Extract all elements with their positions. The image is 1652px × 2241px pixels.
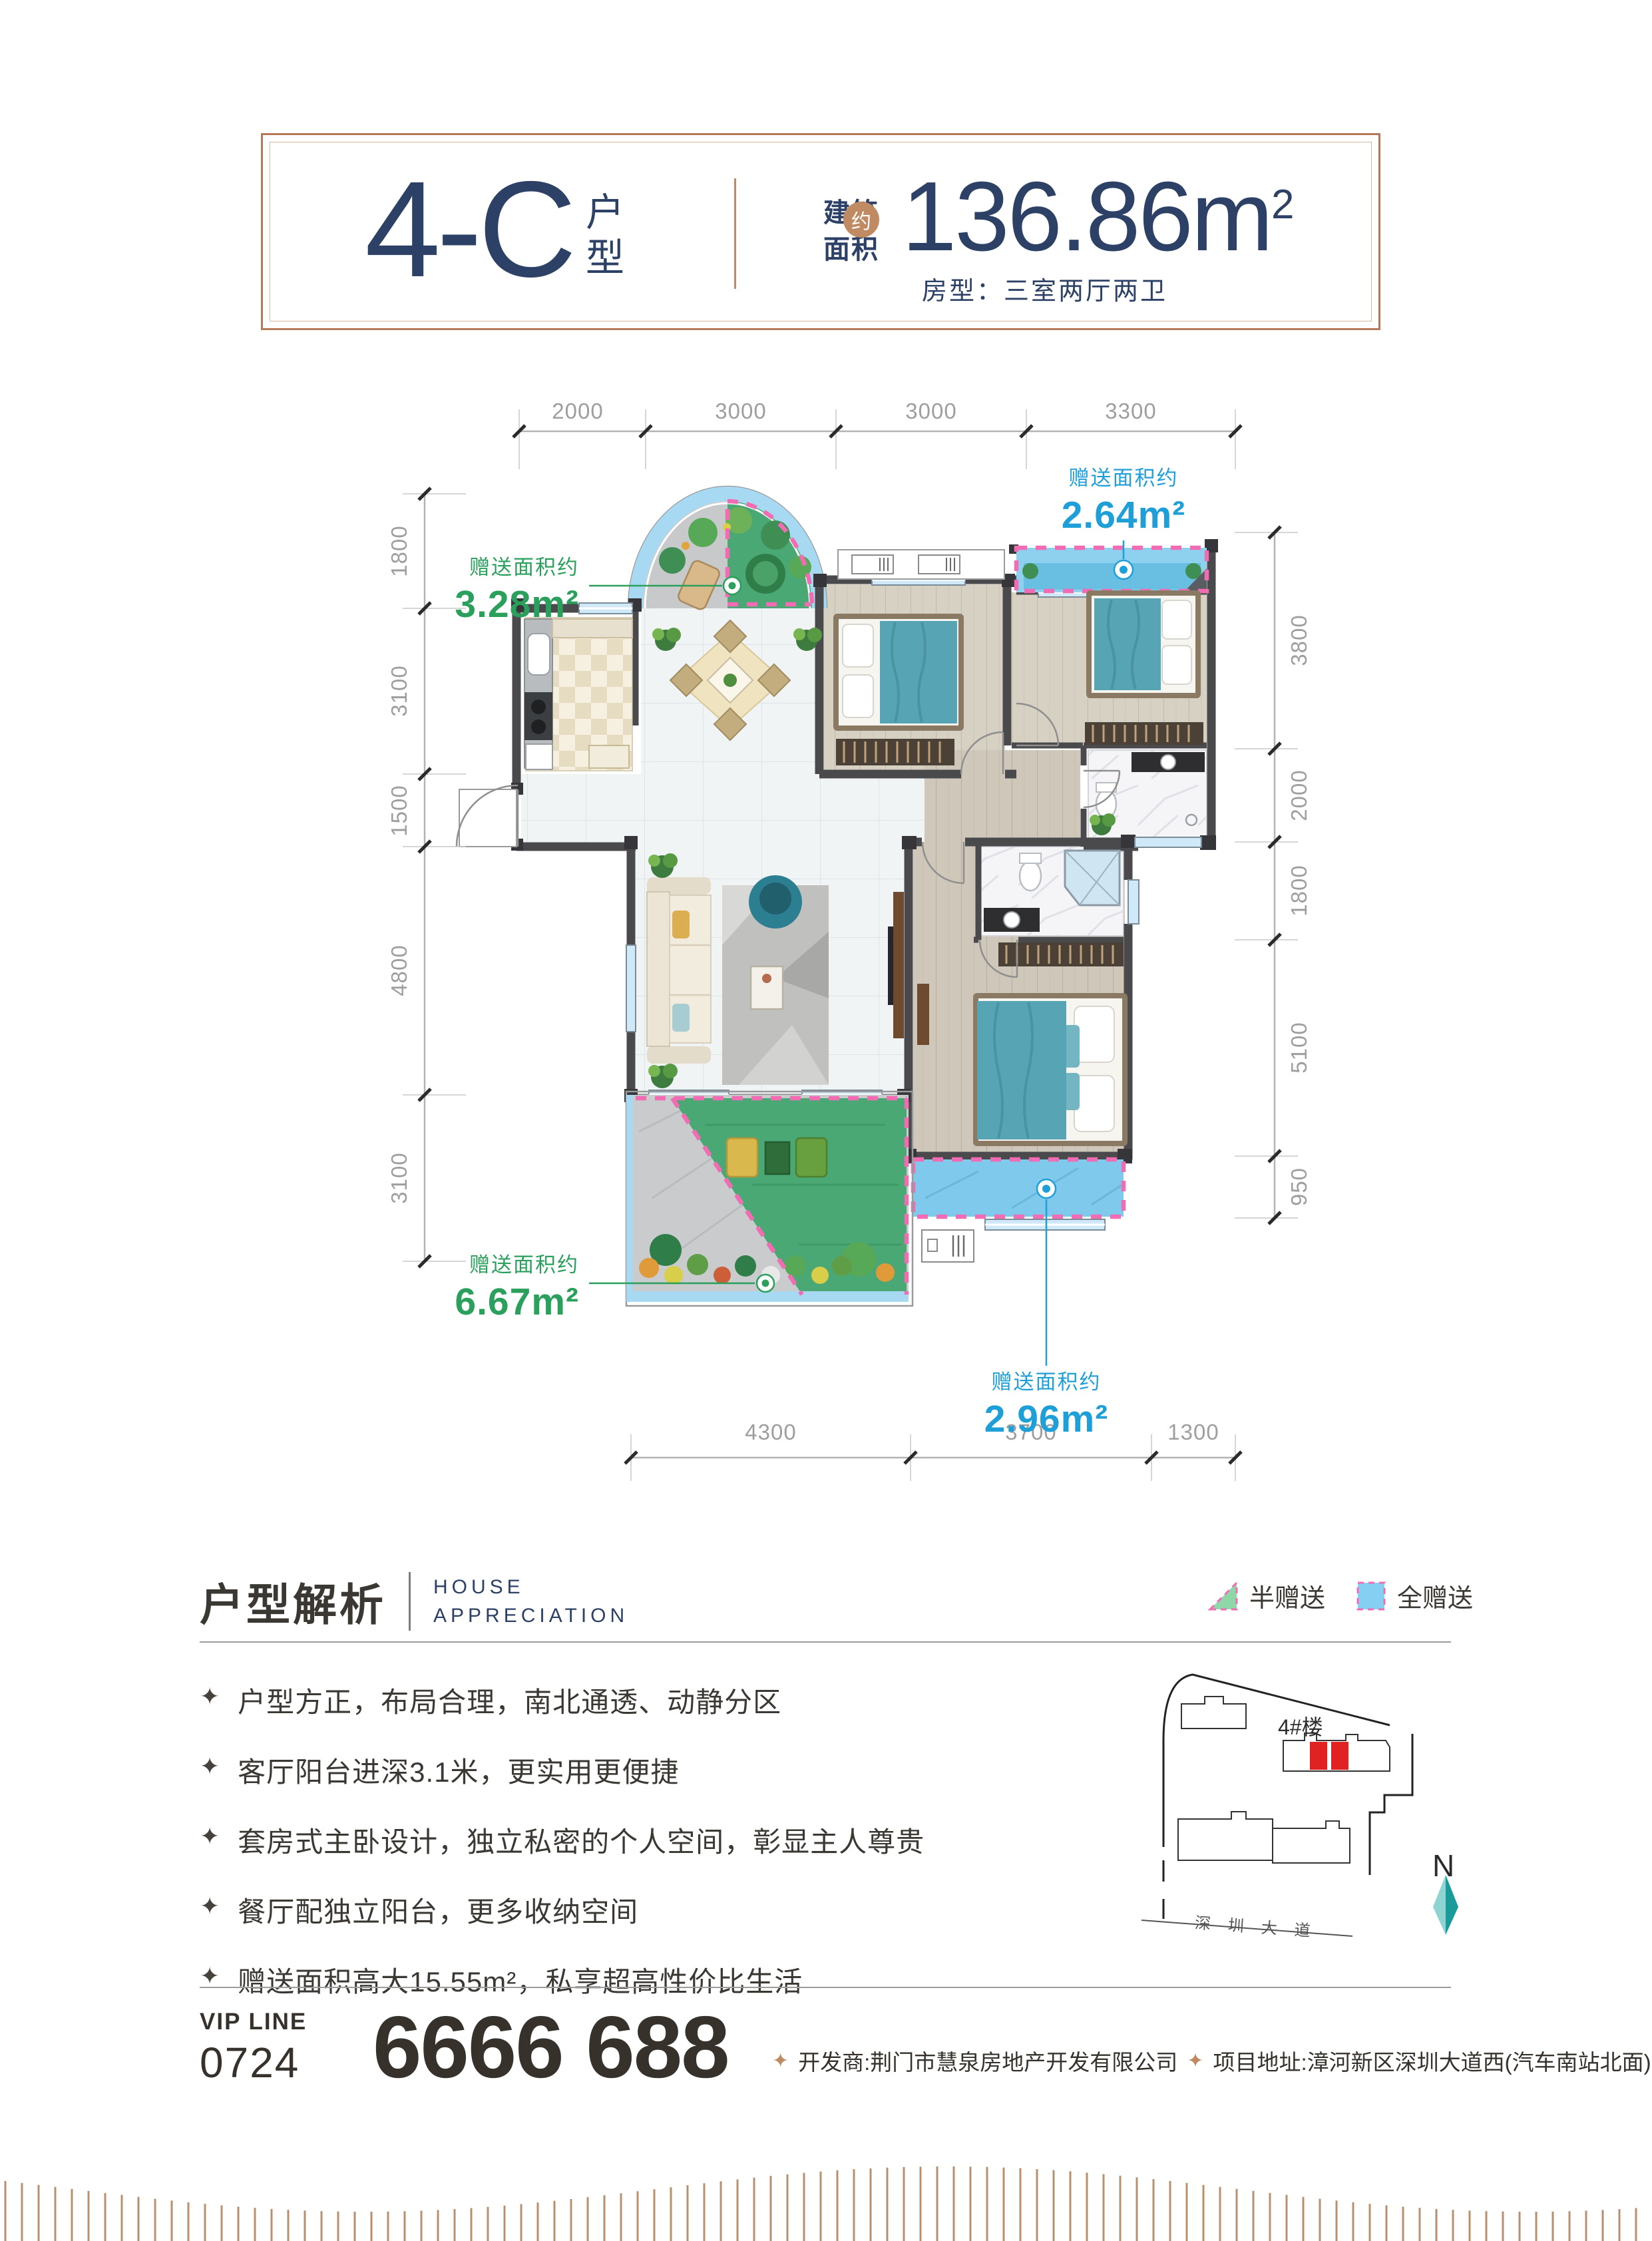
analysis-subtitle: HOUSE APPRECIATION <box>433 1573 628 1631</box>
gift-balcony-top <box>1016 548 1207 592</box>
dim-bottom-1: 4300 <box>745 1420 796 1445</box>
dim-top-4: 3300 <box>1105 399 1156 424</box>
dim-left-2: 3100 <box>387 665 412 716</box>
analysis-subtitle-line1: HOUSE <box>433 1573 628 1602</box>
bullet-text: 餐厅配独立阳台，更多收纳空间 <box>238 1890 638 1930</box>
gift-label-2-64: 赠送面积约 2.64m² <box>1024 466 1223 539</box>
north-label: N <box>1432 1848 1454 1884</box>
bullet-text: 赠送面积高大15.55m²，私享超高性价比生活 <box>238 1959 803 2000</box>
unit-type-label: 户型 <box>586 190 628 282</box>
approx-badge: 约 <box>843 202 879 238</box>
dim-right-1: 3800 <box>1287 614 1312 666</box>
footer-rule <box>200 1987 1451 1988</box>
diamond-bullet-icon: ✦ <box>200 1680 220 1713</box>
dim-right-4: 5100 <box>1287 1022 1312 1073</box>
dim-left-5: 3100 <box>387 1152 412 1203</box>
gift-legend: 半赠送 全赠送 <box>1208 1577 1473 1614</box>
diamond-bullet-icon: ✦ <box>200 1750 220 1783</box>
site-map <box>1105 1641 1498 1937</box>
analysis-subtitle-line2: APPRECIATION <box>433 1601 628 1631</box>
garden-balcony <box>626 1092 913 1306</box>
bullet-text: 户型方正，布局合理，南北通透、动静分区 <box>238 1680 781 1721</box>
gift-label-text: 赠送面积约 <box>1024 466 1223 492</box>
diamond-bullet-icon: ✦ <box>200 1820 220 1853</box>
vip-phone-number: 6666 688 <box>373 1997 729 2097</box>
vip-area-code: 0724 <box>200 2038 307 2087</box>
full-gift-square-icon <box>1356 1581 1386 1611</box>
diamond-icon: ✦ <box>772 2049 789 2073</box>
list-item: ✦赠送面积高大15.55m²，私享超高性价比生活 <box>200 1959 1171 2000</box>
dim-top-3: 3000 <box>905 399 956 424</box>
list-item: ✦套房式主卧设计，独立私密的个人空间，彰显主人尊贵 <box>200 1820 1171 1860</box>
analysis-divider <box>409 1572 411 1631</box>
roof-ledge <box>838 550 1004 579</box>
dim-right-2: 2000 <box>1287 769 1312 821</box>
area-number: 136.86m <box>902 162 1271 272</box>
list-item: ✦客厅阳台进深3.1米，更实用更便捷 <box>200 1750 1171 1790</box>
legend-label: 全赠送 <box>1397 1577 1473 1614</box>
floor-plan <box>373 373 1358 1544</box>
unit-code: 4-C <box>365 161 572 298</box>
wave-decoration <box>0 2146 1652 2241</box>
list-item: ✦户型方正，布局合理，南北通透、动静分区 <box>200 1680 1171 1721</box>
gift-label-6-67: 赠送面积约 6.67m² <box>399 1253 579 1326</box>
analysis-title: 户型解析 <box>200 1569 386 1633</box>
legend-half-gift: 半赠送 <box>1208 1577 1325 1614</box>
dim-right-5: 950 <box>1287 1167 1312 1206</box>
legend-label: 半赠送 <box>1249 1577 1325 1614</box>
legend-full-gift: 全赠送 <box>1356 1577 1473 1614</box>
dim-bottom-3: 1300 <box>1167 1420 1219 1445</box>
gift-balcony-bottom <box>913 1159 1124 1262</box>
dim-top-1: 2000 <box>552 399 603 424</box>
room-type: 房型：三室两厅两卫 <box>922 270 1167 307</box>
gift-label-2-96: 赠送面积约 2.96m² <box>946 1370 1146 1443</box>
selling-points-list: ✦户型方正，布局合理，南北通透、动静分区 ✦客厅阳台进深3.1米，更实用更便捷 … <box>200 1680 1171 2029</box>
gift-label-value: 2.64m² <box>1024 492 1223 539</box>
bullet-text: 套房式主卧设计，独立私密的个人空间，彰显主人尊贵 <box>238 1820 925 1860</box>
diamond-bullet-icon: ✦ <box>200 1890 220 1923</box>
header-divider <box>734 178 736 289</box>
gift-label-value: 3.28m² <box>399 581 579 628</box>
developer-info-row: ✦ 开发商:荆门市慧泉房地产开发有限公司 ✦ 项目地址:漳河新区深圳大道西(汽车… <box>772 2045 1651 2077</box>
gift-label-value: 6.67m² <box>399 1279 579 1326</box>
dim-top-2: 3000 <box>715 399 766 424</box>
gift-label-text: 赠送面积约 <box>946 1370 1146 1396</box>
developer-text: 开发商:荆门市慧泉房地产开发有限公司 <box>798 2045 1177 2077</box>
highlighted-building-4 <box>1310 1742 1327 1770</box>
bullet-text: 客厅阳台进深3.1米，更实用更便捷 <box>238 1750 679 1790</box>
dim-left-3: 1500 <box>387 785 412 836</box>
address-text: 项目地址:漳河新区深圳大道西(汽车南站北面) <box>1213 2045 1651 2077</box>
dim-right-3: 1800 <box>1287 865 1312 916</box>
gift-label-3-28: 赠送面积约 3.28m² <box>399 555 579 628</box>
gift-label-value: 2.96m² <box>946 1396 1146 1443</box>
gift-label-text: 赠送面积约 <box>399 1253 579 1279</box>
dim-left-4: 4800 <box>387 944 412 996</box>
bedroom-2 <box>833 614 964 765</box>
half-gift-triangle-icon <box>1208 1581 1239 1611</box>
vip-line-block: VIP LINE 0724 <box>200 2009 307 2087</box>
north-compass-icon <box>1433 1875 1458 1935</box>
gift-label-text: 赠送面积约 <box>399 555 579 581</box>
vip-line-label: VIP LINE <box>200 2009 307 2035</box>
diamond-icon: ✦ <box>1187 2049 1203 2073</box>
flyer-page: 4-C 户型 建筑 面积 约 136.86m2 房型：三室两厅两卫 <box>0 0 1652 2241</box>
area-superscript: 2 <box>1271 182 1294 228</box>
list-item: ✦餐厅配独立阳台，更多收纳空间 <box>200 1890 1171 1930</box>
building-label: 4#楼 <box>1278 1711 1323 1741</box>
analysis-header: 户型解析 HOUSE APPRECIATION <box>200 1569 628 1633</box>
built-area-value: 136.86m2 <box>902 168 1294 266</box>
